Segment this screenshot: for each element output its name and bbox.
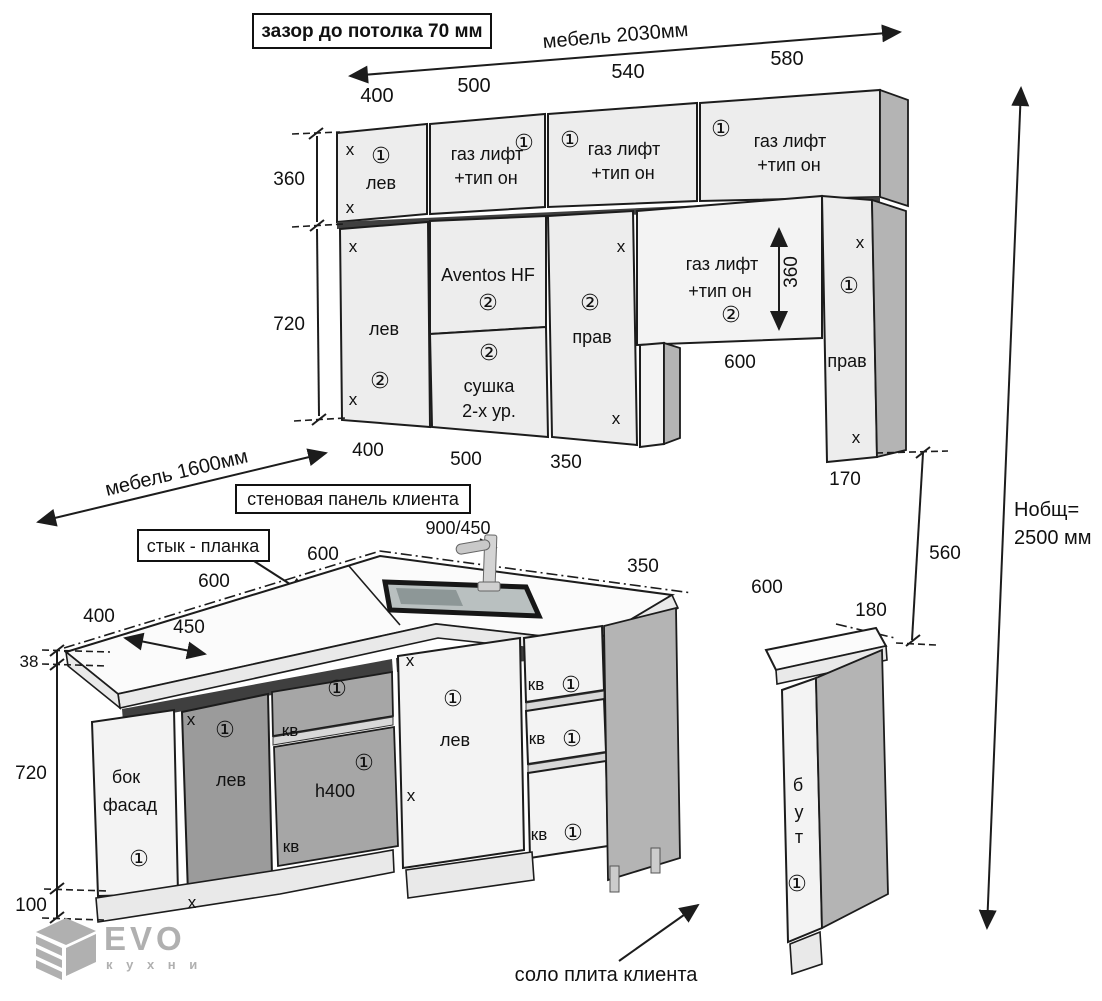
gas-lift-label: газ лифт xyxy=(754,131,826,151)
gas-lift-label2: +тип он xyxy=(688,281,752,301)
cabinet-leg xyxy=(610,866,619,892)
bridge-height-360: 360 xyxy=(781,256,802,288)
tall-column-side xyxy=(872,200,906,457)
x-marker: x xyxy=(406,651,415,670)
count-badge: ① xyxy=(562,727,582,752)
width-1600-label: мебель 1600мм xyxy=(103,445,250,500)
side-panel-label2: фасад xyxy=(103,795,158,815)
count-badge: ② xyxy=(580,291,600,316)
count-badge: ① xyxy=(129,847,149,872)
sink-cabinet-side xyxy=(604,608,680,880)
sink-cabinet: x ① лев x кв ① кв ① кв ① xyxy=(398,608,680,898)
x-marker: x xyxy=(187,710,196,729)
gas-lift-label: газ лифт xyxy=(686,254,758,274)
dim-top-580: 580 xyxy=(770,48,803,70)
dim-height-720: 720 xyxy=(273,314,305,335)
count-badge: ② xyxy=(479,341,499,366)
drawer-kv-label: кв xyxy=(531,825,547,844)
bottle-label-u: у xyxy=(795,802,804,822)
count-badge: ① xyxy=(327,677,347,702)
bar-dim-180: 180 xyxy=(855,600,887,621)
count-badge: ① xyxy=(371,144,391,169)
x-marker: x xyxy=(612,409,621,428)
dim-top-540: 540 xyxy=(611,61,644,83)
gas-lift-label: газ лифт xyxy=(588,139,660,159)
wall-cab-side-panel xyxy=(880,90,908,206)
count-badge: ① xyxy=(839,274,859,299)
count-badge: ① xyxy=(563,821,583,846)
sink-size-label: 900/450 xyxy=(425,518,490,538)
total-height-label: Нобщ= xyxy=(1014,499,1079,521)
door-side-label: прав xyxy=(827,351,866,371)
drawing-canvas: x x ① лев газ лифт +тип он ① газ лифт +т… xyxy=(0,0,1102,1001)
gas-lift-label: газ лифт xyxy=(451,144,523,164)
drawer-kv-label: кв xyxy=(283,837,299,856)
aventos-label: Aventos HF xyxy=(441,265,535,285)
count-badge: ① xyxy=(561,673,581,698)
count-badge: ① xyxy=(354,751,374,776)
drawer-h400-label: h400 xyxy=(315,781,355,801)
dim-base-720: 720 xyxy=(15,763,47,784)
cabinet-leg xyxy=(651,848,660,873)
drawer-kv-label: кв xyxy=(528,675,544,694)
dim-560: 560 xyxy=(929,543,961,564)
x-marker: x xyxy=(349,390,358,409)
dryer-label: сушка xyxy=(464,376,516,396)
ct-dim-450: 450 xyxy=(173,617,205,638)
count-badge: ① xyxy=(787,872,807,897)
side-panel-label1: бок xyxy=(112,767,140,787)
evo-logo: EVO к у х н и xyxy=(36,918,202,980)
count-badge: ② xyxy=(478,291,498,316)
x-marker: x xyxy=(346,140,355,159)
x-marker: x xyxy=(856,233,865,252)
wall-panel-note: стеновая панель клиента xyxy=(247,489,460,509)
dryer-label2: 2-х ур. xyxy=(462,401,516,421)
stove-arrow xyxy=(619,905,698,961)
stove-label: соло плита клиента xyxy=(515,964,699,986)
count-badge: ② xyxy=(721,303,741,328)
tall-column-front xyxy=(822,196,877,462)
count-badge: ① xyxy=(560,128,580,153)
kitchen-drawing: x x ① лев газ лифт +тип он ① газ лифт +т… xyxy=(0,0,1102,1001)
bottle-cabinet: 180 600 б у т ① xyxy=(751,577,895,974)
total-height-value: 2500 мм xyxy=(1014,527,1092,549)
x-marker: x xyxy=(188,893,197,912)
joint-note: стык - планка xyxy=(147,536,261,556)
count-badge: ① xyxy=(443,687,463,712)
bottle-side xyxy=(816,650,888,928)
count-badge: ① xyxy=(514,131,534,156)
gas-lift-label2: +тип он xyxy=(591,163,655,183)
wall-cab-2-door xyxy=(430,114,545,214)
drawer-kv-label: кв xyxy=(529,729,545,748)
x-marker: x xyxy=(349,237,358,256)
count-badge: ① xyxy=(215,718,235,743)
door-side-label: прав xyxy=(572,327,611,347)
ct-dim-600a: 600 xyxy=(198,571,230,592)
gas-lift-label2: +тип он xyxy=(757,155,821,175)
x-marker: x xyxy=(617,237,626,256)
dim-38: 38 xyxy=(20,652,39,671)
drawer-kv-label: кв xyxy=(282,721,298,740)
logo-sub: к у х н и xyxy=(106,957,202,972)
x-marker: x xyxy=(407,786,416,805)
sink-door-lev xyxy=(398,638,524,868)
dim-bottom-500: 500 xyxy=(450,449,482,470)
dim-bottom-350: 350 xyxy=(550,452,582,473)
count-badge: ① xyxy=(711,117,731,142)
width-2030-label: мебель 2030мм xyxy=(542,19,689,53)
door-side-label: лев xyxy=(369,319,399,339)
x-marker: x xyxy=(346,198,355,217)
bottle-label-t: т xyxy=(795,827,803,847)
stove-note: соло плита клиента xyxy=(515,905,699,986)
door-side-label: лев xyxy=(216,770,246,790)
ct-dim-600b: 600 xyxy=(307,544,339,565)
ceiling-gap-note: зазор до потолка 70 мм xyxy=(261,21,482,42)
gas-lift-label2: +тип он xyxy=(454,168,518,188)
sink-basin-shadow xyxy=(396,588,463,606)
door-side-label: лев xyxy=(440,730,470,750)
door-side-label: лев xyxy=(366,173,396,193)
dim-bottom-400: 400 xyxy=(352,440,384,461)
dim-depth-170: 170 xyxy=(829,469,861,490)
bridge-gap-600: 600 xyxy=(724,352,756,373)
count-badge: ② xyxy=(370,369,390,394)
dim-top-500: 500 xyxy=(457,75,490,97)
dim-top-400: 400 xyxy=(360,85,393,107)
bottle-label-b: б xyxy=(793,775,803,795)
logo-name: EVO xyxy=(104,920,186,957)
bridge-support-side xyxy=(664,343,680,444)
ct-dim-400: 400 xyxy=(83,606,115,627)
dim-height-360: 360 xyxy=(273,169,305,190)
ct-dim-350: 350 xyxy=(627,556,659,577)
bar-dim-600: 600 xyxy=(751,577,783,598)
bridge-support-front xyxy=(640,343,664,447)
x-marker: x xyxy=(852,428,861,447)
dim-plinth-100: 100 xyxy=(15,895,47,916)
